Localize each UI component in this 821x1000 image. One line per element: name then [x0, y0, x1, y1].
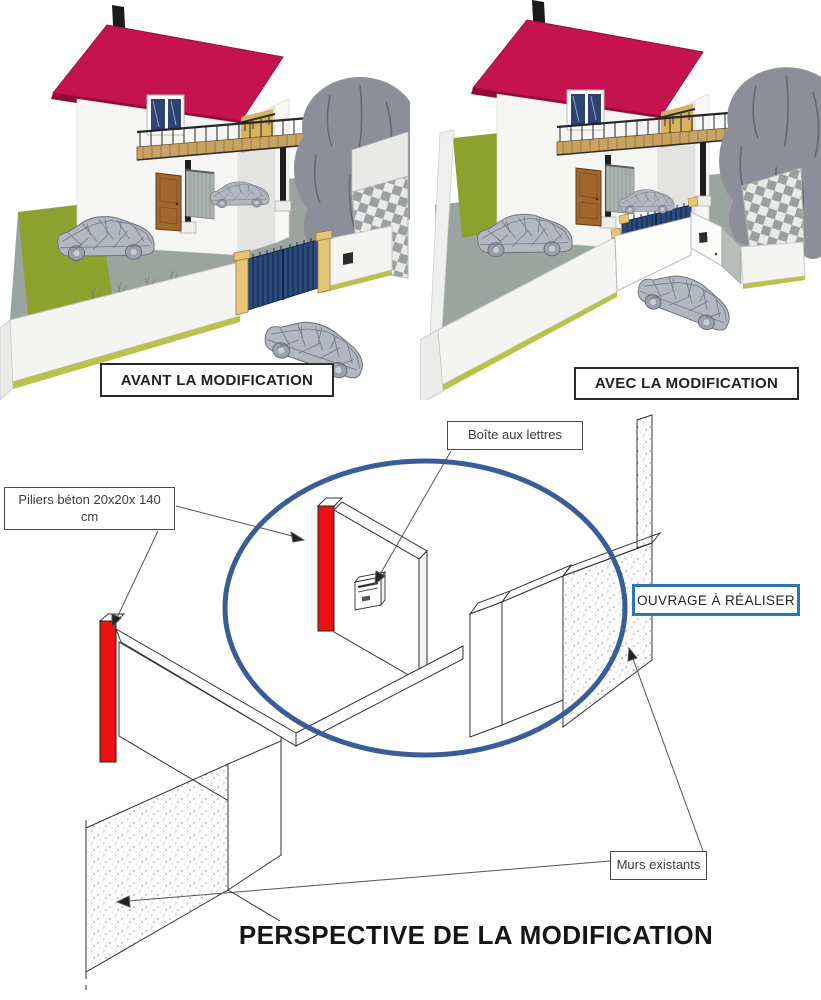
- red-pillar: [100, 621, 116, 762]
- work-to-build-callout: OUVRAGE À RÉALISER: [632, 584, 800, 616]
- intercom: [343, 252, 353, 265]
- existing-wall-right: [563, 415, 660, 727]
- render-after-3d: [420, 0, 821, 400]
- label-after: AVEC LA MODIFICATION: [574, 367, 799, 400]
- drawing-title: PERSPECTIVE DE LA MODIFICATION: [116, 920, 821, 951]
- intercom: [699, 232, 708, 243]
- mailbox-callout: Boîte aux lettres: [447, 421, 583, 450]
- pillars-callout: Piliers béton 20x20x 140 cm: [4, 487, 175, 530]
- red-pillar: [318, 506, 334, 631]
- new-wall-right: [470, 565, 571, 737]
- render-before-3d: [0, 0, 410, 400]
- existing-walls-callout: Murs existants: [610, 851, 707, 880]
- plan-sheet: AVANT LA MODIFICATION: [0, 0, 821, 1000]
- label-before: AVANT LA MODIFICATION: [100, 363, 334, 397]
